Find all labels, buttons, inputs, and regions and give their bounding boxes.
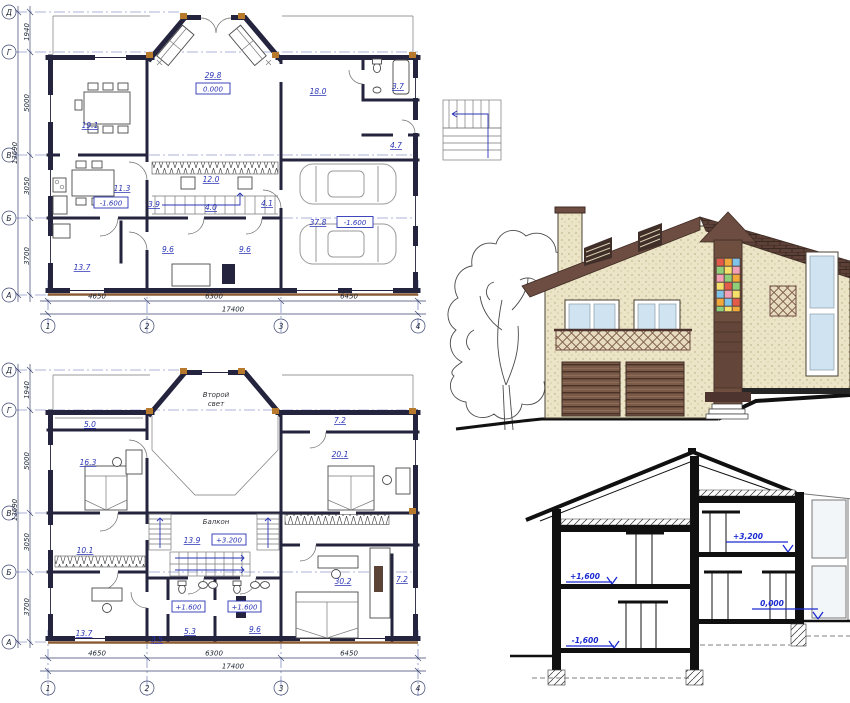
room-area-label: 11.3 <box>114 184 131 193</box>
room-area-label: 9.6 <box>239 245 251 254</box>
axis-label: А <box>5 291 11 300</box>
axis-label: 4 <box>416 322 421 331</box>
axis-label: 2 <box>145 684 150 693</box>
level-label: -1.600 <box>100 200 123 208</box>
drawing-canvas: 19.1 29.8 0.000 18.0 3.7 4.7 11.3 -1.600… <box>0 0 850 703</box>
balcony-lattice <box>556 330 690 350</box>
axis-label: А <box>5 638 11 647</box>
room-area-label: 3.7 <box>392 82 404 91</box>
dim-label: 6300 <box>205 293 223 301</box>
section-wall-right <box>795 492 804 625</box>
room-area-label: 37.8 <box>310 218 327 227</box>
room-area-label: 7.2 <box>334 416 346 425</box>
dim-label: 5000 <box>23 94 31 112</box>
fixture <box>172 264 210 286</box>
axis-label: 3 <box>279 322 284 331</box>
room-area-label: 20.1 <box>332 450 349 459</box>
svg-text:+3,200: +3,200 <box>733 532 763 541</box>
dim-label: 17400 <box>222 663 245 671</box>
svg-text:+1,600: +1,600 <box>570 572 600 581</box>
entry-canopy <box>705 392 751 402</box>
exterior-stair <box>443 100 501 160</box>
room-area-label: 19.1 <box>82 121 99 130</box>
dim-label: 6450 <box>340 293 358 301</box>
level-label: -1.600 <box>344 219 367 227</box>
level-label: +1.600 <box>232 604 258 612</box>
lattice-panel <box>770 286 796 316</box>
car <box>300 164 396 204</box>
dimensions-bottom: 4650 6300 6450 17400 1 2 3 4 <box>40 650 426 696</box>
room-area-label: 30.2 <box>335 577 352 586</box>
tall-window <box>806 252 838 376</box>
axis-label: Г <box>7 406 12 415</box>
dimensions-bottom: 4650 6300 6450 17400 1 2 3 4 <box>40 293 426 334</box>
axis-label: В <box>6 509 11 518</box>
bed <box>328 466 374 510</box>
room-area-label: 3.5 <box>151 635 163 644</box>
chimney-cap <box>555 207 585 213</box>
wardrobe-hatch <box>55 556 145 567</box>
dim-label: 4650 <box>88 293 106 301</box>
axis-label: 2 <box>145 322 150 331</box>
axis-label: Б <box>6 568 11 577</box>
room-area-label: 13.7 <box>74 263 91 272</box>
room-area-label: 13.7 <box>76 629 93 638</box>
architectural-sheet: 19.1 29.8 0.000 18.0 3.7 4.7 11.3 -1.600… <box>0 0 850 703</box>
room-area-label: 18.0 <box>310 87 327 96</box>
axis-label: 3 <box>279 684 284 693</box>
room-area-label: 16.3 <box>80 458 97 467</box>
dim-label: 3050 <box>23 533 31 551</box>
dimensions-left: 1940 5000 3050 3700 13690 Д Г В Б А <box>2 5 33 302</box>
level-mark-plus1600: +1,600 <box>566 572 617 584</box>
stained-glass-window <box>716 258 740 312</box>
dim-label: 1940 <box>23 23 31 41</box>
closet <box>370 548 390 618</box>
bathroom-fixtures <box>178 581 270 618</box>
dim-label: 13690 <box>11 141 19 164</box>
floor-plus3200 <box>699 552 795 557</box>
room-area-label: 7.2 <box>396 575 408 584</box>
level-mark-minus1600: -1,600 <box>566 636 619 648</box>
second-light-railing <box>152 416 278 495</box>
armchair <box>238 177 252 189</box>
dimensions-left: 1940 5000 3050 3700 13690 Д Г В Б А <box>2 363 33 649</box>
axis-label: Д <box>5 8 12 17</box>
fixture <box>53 224 70 238</box>
axis-label: Б <box>6 214 11 223</box>
wardrobe-hatch <box>285 515 389 525</box>
dim-label: 3700 <box>23 247 31 265</box>
dim-label: 1940 <box>23 381 31 399</box>
axis-label: 1 <box>46 684 51 693</box>
stair-central <box>170 552 250 576</box>
dim-label: 6300 <box>205 650 223 658</box>
level-mark-plus3200: +3,200 <box>726 532 793 552</box>
room-area-label: 13.9 <box>184 536 201 545</box>
dim-label: 17400 <box>222 306 245 314</box>
entry-steps <box>706 404 748 419</box>
room-area-label: 3.9 <box>148 200 160 209</box>
stair-flight-right <box>257 514 279 550</box>
dim-label: 3050 <box>23 177 31 195</box>
second-light-label: свет <box>208 400 225 408</box>
window <box>812 500 846 618</box>
floor-minus1600 <box>561 648 690 653</box>
house-elevation <box>448 207 850 430</box>
balcony-label: Балкон <box>203 518 230 526</box>
building-section: +1,600 -1,600 +3,200 0,000 <box>510 448 850 685</box>
door-frame <box>618 602 668 648</box>
armchair <box>181 177 195 189</box>
door-frame <box>626 533 664 584</box>
section-wall-middle <box>690 456 699 670</box>
room-area-label: 12.0 <box>203 175 220 184</box>
second-light-label: Второй <box>203 391 230 399</box>
axis-label: В <box>6 151 11 160</box>
level-label: +3.200 <box>216 537 242 545</box>
axis-label: 4 <box>416 684 421 693</box>
section-wall-left <box>552 509 561 670</box>
floor-zero <box>699 619 795 624</box>
wardrobe-hatch <box>152 162 278 174</box>
room-area-label: 4.7 <box>390 141 402 150</box>
room-area-label: 9.6 <box>162 245 174 254</box>
stair-flight-left <box>149 514 171 550</box>
plan-first-floor: 19.1 29.8 0.000 18.0 3.7 4.7 11.3 -1.600… <box>2 5 501 333</box>
room-area-label: 10.1 <box>77 546 94 555</box>
dim-label: 3700 <box>23 598 31 616</box>
desk-chair <box>318 556 358 579</box>
car <box>300 224 396 264</box>
room-area-label: 9.6 <box>249 625 261 634</box>
axis-label: Д <box>5 366 12 375</box>
dim-label: 5000 <box>23 452 31 470</box>
right-wing-base <box>742 388 850 394</box>
garage-door <box>626 362 684 416</box>
floor-plus1600 <box>561 584 690 589</box>
plan-second-floor: Второй свет Балкон 5.0 16.3 7.2 20.1 13.… <box>2 363 426 696</box>
level-label: 0.000 <box>203 86 224 94</box>
desk-chair <box>92 588 122 613</box>
axis-label: Г <box>7 48 12 57</box>
door-frame <box>762 572 796 619</box>
level-label: +1.600 <box>176 604 202 612</box>
dim-label: 6450 <box>340 650 358 658</box>
room-area-label: 5.0 <box>84 420 96 429</box>
bed <box>296 592 358 638</box>
room-area-label: 29.8 <box>205 71 222 80</box>
room-area-label: 5.3 <box>184 627 196 636</box>
dim-label: 4650 <box>88 650 106 658</box>
room-area-label: 4.0 <box>205 203 217 212</box>
svg-text:0,000: 0,000 <box>760 599 784 608</box>
boiler <box>222 264 235 284</box>
garage-door <box>562 362 620 416</box>
axis-label: 1 <box>46 322 51 331</box>
bed <box>85 466 127 510</box>
desk-chair <box>383 468 411 494</box>
room-area-label: 4.1 <box>261 199 273 208</box>
svg-text:-1,600: -1,600 <box>572 636 599 645</box>
door-frame <box>704 572 742 619</box>
